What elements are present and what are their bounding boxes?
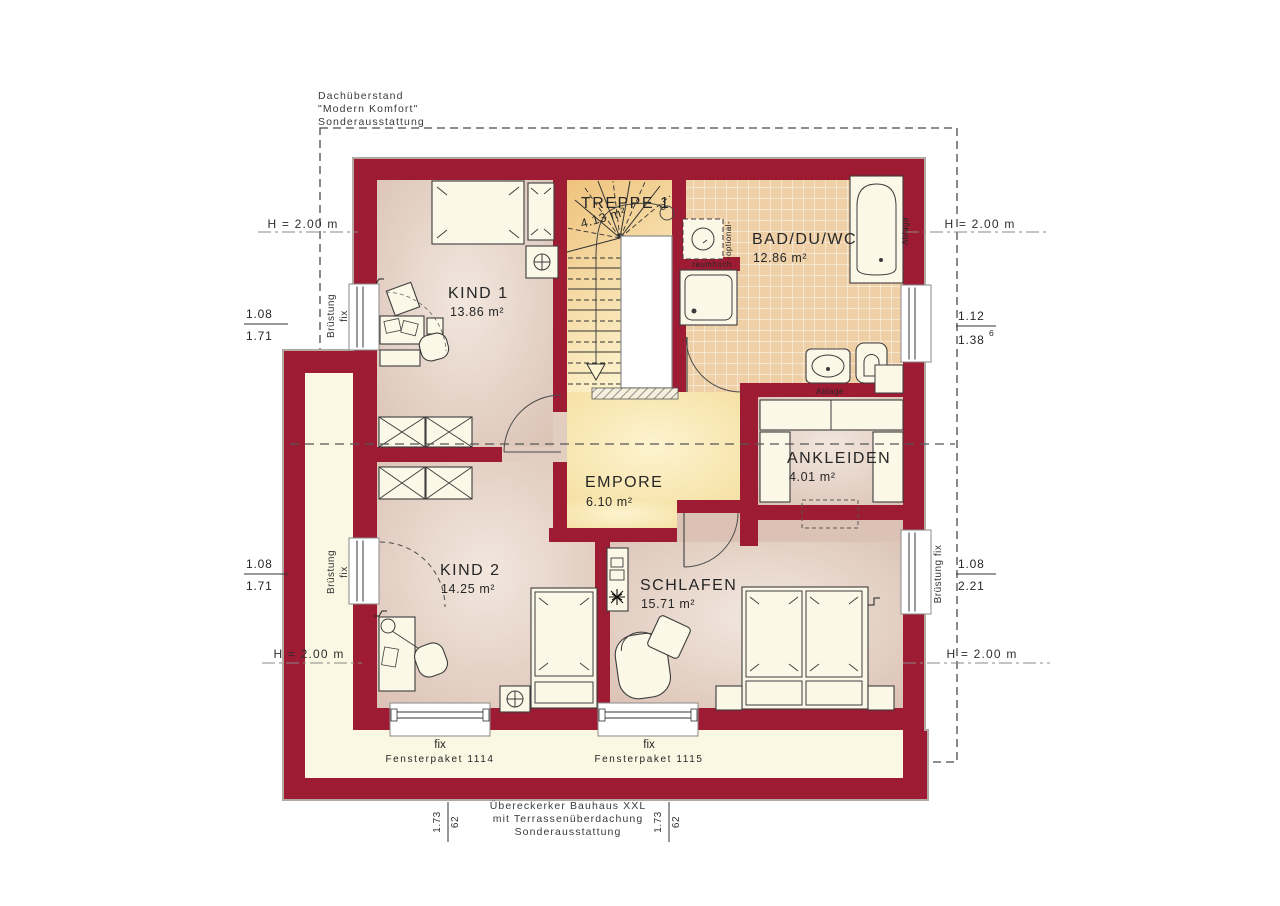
bruestung-fix-right-label: Brüstung fix [933,545,944,604]
room-area-ankleiden: 4.01 m² [789,470,836,484]
room-area-kind2: 14.25 m² [441,582,495,596]
bruestung-label: Brüstung [326,550,337,594]
frac-num: 1.08 [246,557,273,571]
wardrobe-icon [379,467,472,499]
raumhoch-label: raumhoch [692,260,732,269]
ablage-tub-label: Ablage [901,217,910,245]
bed-icon [531,588,597,708]
fix-label-1: fix [434,739,446,751]
room-area-schlafen: 15.71 m² [641,597,695,611]
height-label-bottom-left: H = 2.00 m [273,647,344,661]
roof-note-line1: Dachüberstand [318,90,404,102]
gallery-railing [592,388,678,399]
room-label-kind2: KIND 2 [440,562,501,579]
roof-note-line2: "Modern Komfort" [318,103,418,115]
room-label-treppe: TREPPE 1 [581,195,670,212]
bench-icon [380,350,420,366]
fensterpaket-1114: Fensterpaket 1114 [385,754,494,765]
room-label-bad: BAD/DU/WC [752,231,857,248]
frac-den: 2.21 [958,579,985,593]
nightstand-icon [716,686,742,710]
shower-icon [680,270,737,325]
window-right-top [901,285,931,362]
room-label-empore: EMPORE [585,474,663,491]
height-label-top-left: H = 2.00 m [267,217,338,231]
eave-dim-a: 1.73 [432,811,443,832]
wardrobe-icon [873,432,903,502]
floorplan-page: KIND 1 13.86 m² TREPPE 1 4.13 m² BAD/DU/… [0,0,1280,906]
room-label-kind1: KIND 1 [448,285,509,302]
bruestung-label: Brüstung [326,294,337,338]
optional-fixture-icon [683,219,723,259]
optional-label: -optional- [724,221,733,259]
frac-den: 1.71 [246,579,273,593]
height-label-top-right: H = 2.00 m [944,217,1015,231]
plant-icon [609,589,625,605]
room-label-schlafen: SCHLAFEN [640,577,737,594]
window-right-bottom [901,530,931,614]
bruestung-fix-label: fix [339,566,350,578]
frac-den: 1.71 [246,329,273,343]
floorplan-drawing: KIND 1 13.86 m² TREPPE 1 4.13 m² BAD/DU/… [0,0,1280,906]
room-area-empore: 6.10 m² [586,495,633,509]
roof-note: Dachüberstand "Modern Komfort" Sonderaus… [318,90,425,128]
wardrobe-icon [379,417,472,447]
ablage-bath-label: Ablage [816,387,844,396]
window-south-1 [390,703,490,736]
eave-dim-b: 62 [450,816,461,828]
shelf-icon [875,365,903,393]
stair-void [621,236,672,388]
terrace-note-line1: Übereckerker Bauhaus XXL [490,800,647,812]
container-icon [427,318,443,334]
frac-num: 1.12 [958,309,985,323]
bathtub-icon [850,176,903,283]
window-left-top [349,284,379,350]
room-area-bad: 12.86 m² [753,251,807,265]
height-label-bottom-right: H = 2.00 m [946,647,1017,661]
nightstand-icon [868,686,894,710]
frac-num: 1.08 [246,307,273,321]
eave-dim-a: 1.73 [653,811,664,832]
bed-icon [432,181,524,244]
frac-den: 1.38 [958,333,985,347]
terrace-note-line3: Sonderausstattung [515,826,622,838]
roof-note-line3: Sonderausstattung [318,116,425,128]
frac-num: 1.08 [958,557,985,571]
room-label-ankleiden: ANKLEIDEN [787,450,891,467]
fensterpaket-1115: Fensterpaket 1115 [594,754,703,765]
fix-label-2: fix [643,739,655,751]
wardrobe-icon [760,432,790,502]
terrace-note: Übereckerker Bauhaus XXL mit Terrassenüb… [490,800,647,838]
double-bed-icon [742,587,868,709]
washbasin-icon [806,349,850,383]
eave-dim-b: 62 [671,816,682,828]
window-south-2 [598,703,698,736]
frac-sup: 6 [989,328,994,338]
room-area-kind1: 13.86 m² [450,305,504,319]
window-left-bottom [349,538,379,604]
bruestung-fix-label: fix [339,310,350,322]
cot-icon [528,183,554,240]
terrace-note-line2: mit Terrassenüberdachung [493,813,644,825]
